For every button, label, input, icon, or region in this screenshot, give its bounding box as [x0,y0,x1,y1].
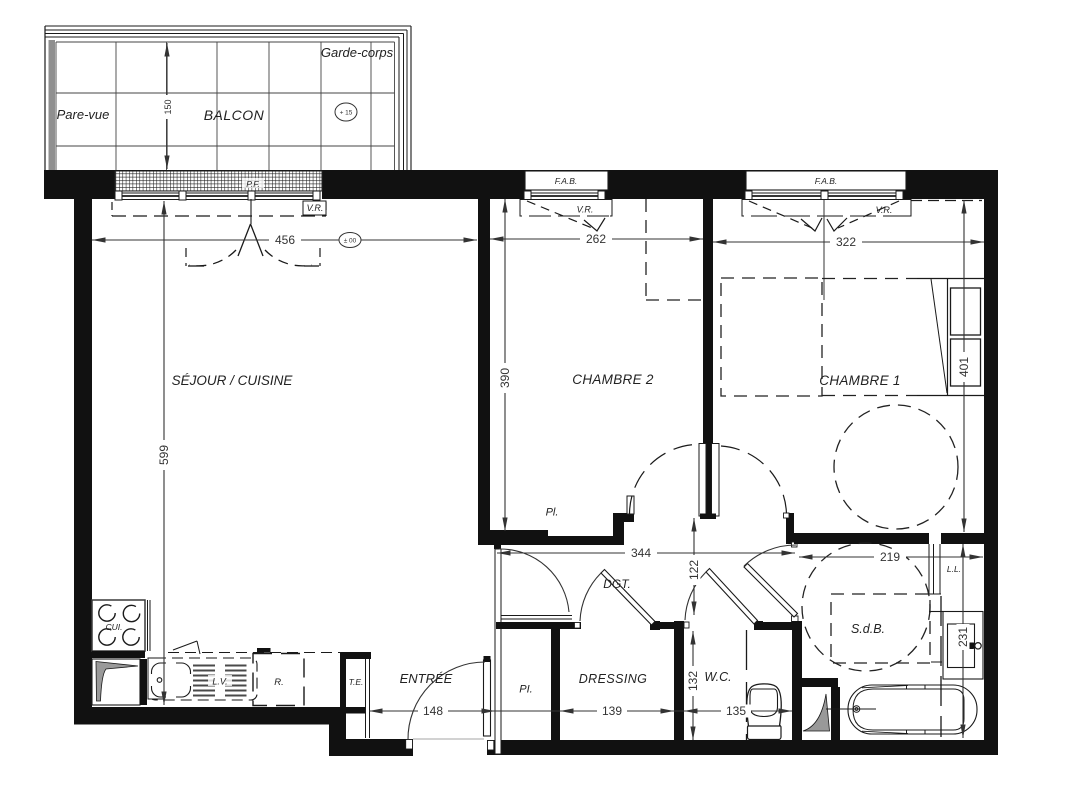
svg-text:DGT.: DGT. [603,577,631,591]
svg-text:456: 456 [275,233,295,247]
svg-text:231: 231 [956,627,970,647]
svg-text:T.E.: T.E. [349,677,364,687]
svg-text:S.d.B.: S.d.B. [851,622,885,636]
svg-text:148: 148 [423,704,443,718]
svg-text:CUI.: CUI. [106,622,123,632]
svg-text:BALCON: BALCON [204,107,265,123]
svg-text:599: 599 [157,445,171,465]
svg-text:CHAMBRE 1: CHAMBRE 1 [819,373,900,388]
svg-text:135: 135 [726,704,746,718]
svg-text:L.L.: L.L. [947,564,961,574]
svg-text:L.V.: L.V. [212,677,227,687]
svg-text:219: 219 [880,550,900,564]
svg-text:DRESSING: DRESSING [579,672,648,686]
svg-text:R.: R. [274,677,284,688]
svg-text:139: 139 [602,704,622,718]
svg-text:150: 150 [163,99,173,114]
svg-text:122: 122 [687,560,701,580]
svg-text:344: 344 [631,546,651,560]
svg-text:Pl.: Pl. [546,507,559,519]
svg-text:Garde-corps: Garde-corps [321,45,394,60]
svg-text:W.C.: W.C. [704,670,731,684]
svg-text:V.R.: V.R. [307,203,324,213]
svg-text:132: 132 [686,671,700,691]
svg-text:F.A.B.: F.A.B. [815,176,838,186]
svg-text:P.F.: P.F. [246,179,259,189]
svg-text:PI.: PI. [519,684,532,696]
svg-text:SÉJOUR / CUISINE: SÉJOUR / CUISINE [172,373,294,388]
svg-text:+ 15: + 15 [340,110,353,117]
svg-text:CHAMBRE 2: CHAMBRE 2 [572,372,654,387]
svg-text:ENTRÉE: ENTRÉE [400,671,453,686]
svg-text:F.A.B.: F.A.B. [555,176,578,186]
svg-text:± 00: ± 00 [344,238,357,245]
svg-text:401: 401 [957,357,971,377]
svg-text:390: 390 [498,368,512,388]
svg-text:262: 262 [586,232,606,246]
svg-text:V.R.: V.R. [577,205,594,215]
svg-text:Pare-vue: Pare-vue [57,107,110,122]
svg-text:322: 322 [836,235,856,249]
